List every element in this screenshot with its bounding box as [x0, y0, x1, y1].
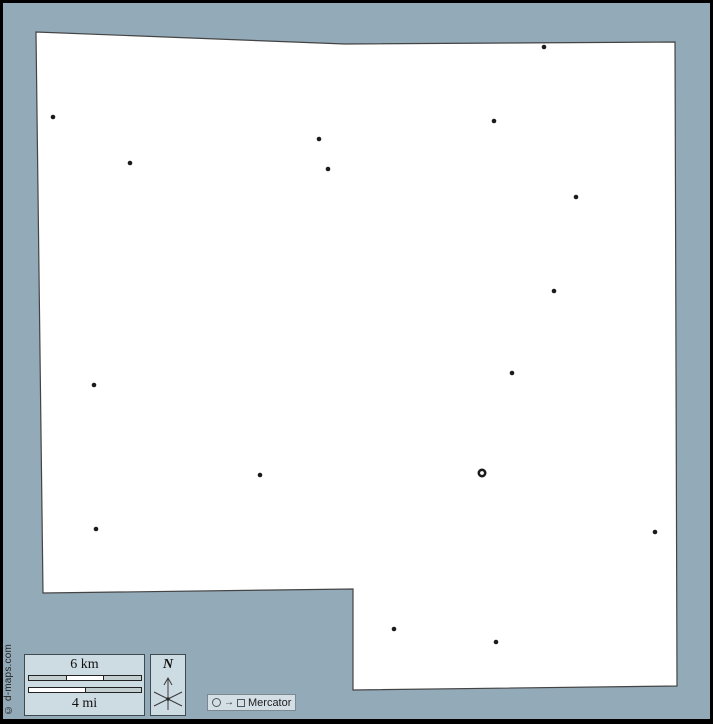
scale-km-label: 6 km [25, 657, 144, 673]
city-dot [542, 45, 547, 50]
scale-segment-white [29, 688, 85, 692]
city-dot [92, 383, 97, 388]
projection-label: Mercator [248, 697, 291, 709]
map-area [0, 0, 713, 724]
map-canvas: © d-maps.com 6 km 4 mi N → Mercator [0, 0, 713, 724]
city-dot [492, 119, 497, 124]
arrow-right-icon: → [224, 698, 234, 708]
scale-bar: 6 km 4 mi [24, 654, 145, 716]
capital-ring [479, 470, 485, 476]
city-dot [494, 640, 499, 645]
city-dot [51, 115, 56, 120]
circle-icon [212, 698, 221, 707]
city-dot [258, 473, 263, 478]
country-outline [36, 32, 677, 690]
scale-segment-gray [103, 676, 141, 680]
scale-segment-white [66, 676, 104, 680]
city-dot [392, 627, 397, 632]
north-arrow-icon [151, 672, 185, 713]
square-icon [237, 699, 245, 707]
city-dot [326, 167, 331, 172]
scale-segment-gray [29, 676, 66, 680]
scale-mi-label: 4 mi [25, 696, 144, 712]
city-dot [653, 530, 658, 535]
city-dot [94, 527, 99, 532]
scale-km-bar [28, 675, 142, 681]
scale-segment-gray [85, 688, 142, 692]
city-dot [128, 161, 133, 166]
city-dot [552, 289, 557, 294]
compass-n-label: N [151, 657, 185, 672]
scale-mi-bar [28, 687, 142, 693]
copyright-text: © d-maps.com [3, 644, 14, 715]
projection-badge: → Mercator [207, 694, 296, 711]
city-dot [574, 195, 579, 200]
city-dot [510, 371, 515, 376]
city-dot [317, 137, 322, 142]
compass: N [150, 654, 186, 716]
